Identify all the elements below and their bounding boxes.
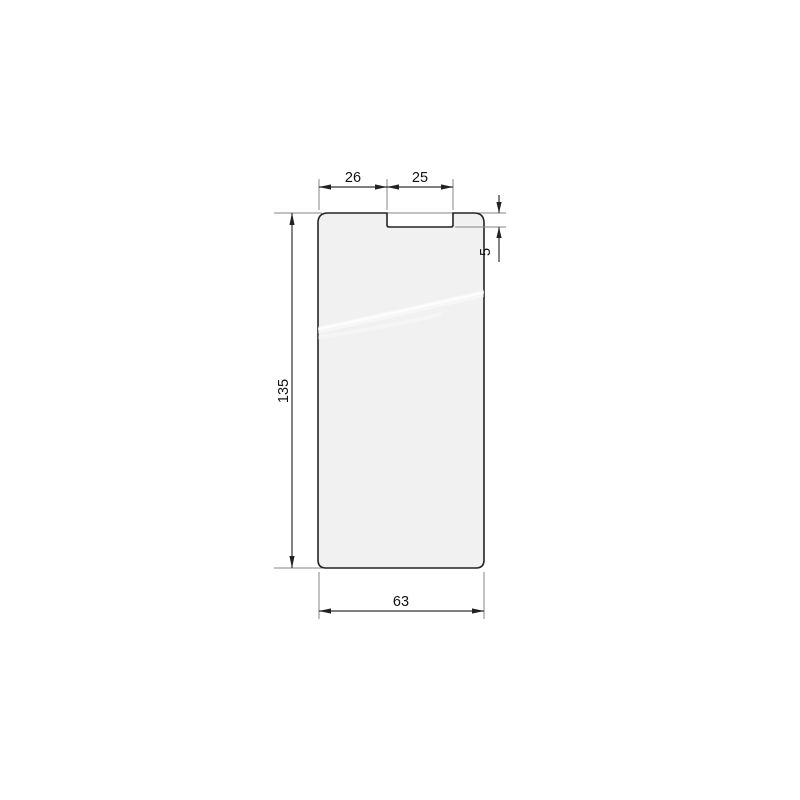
- arrowhead-left-icon: [387, 184, 399, 189]
- arrowhead-left-icon: [319, 608, 331, 613]
- arrowhead-down-icon: [289, 556, 294, 568]
- dim-overall-width-label: 63: [393, 594, 409, 610]
- screen-protector-outline: [318, 213, 484, 568]
- arrowhead-right-icon: [375, 184, 387, 189]
- dim-notch-width-label: 25: [412, 170, 428, 186]
- dim-overall-height-label: 135: [276, 379, 292, 403]
- dim-top-left-segment-label: 26: [345, 170, 361, 186]
- arrowhead-right-icon: [441, 184, 453, 189]
- arrowhead-up-icon: [496, 227, 501, 238]
- arrowhead-up-icon: [289, 213, 294, 225]
- technical-drawing-canvas: 26 25 5 135 63: [0, 0, 800, 800]
- arrowhead-down-icon: [496, 202, 501, 213]
- arrowhead-right-icon: [472, 608, 484, 613]
- arrowhead-left-icon: [319, 184, 331, 189]
- dim-notch-depth-label: 5: [478, 248, 494, 256]
- drawing-viewport: 26 25 5 135 63: [0, 0, 800, 800]
